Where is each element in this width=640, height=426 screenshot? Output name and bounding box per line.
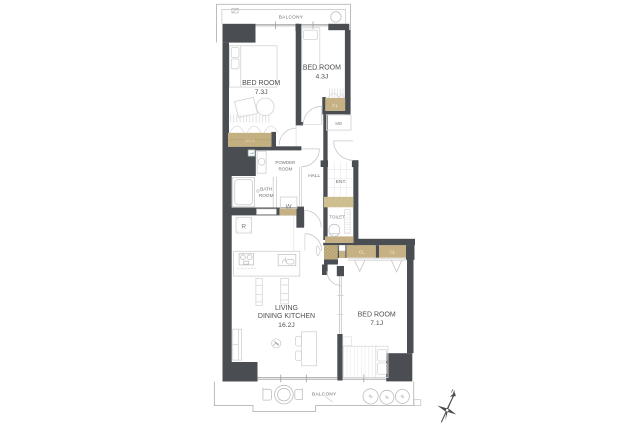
svg-text:BED ROOM: BED ROOM bbox=[358, 311, 396, 318]
svg-text:BED ROOM: BED ROOM bbox=[303, 64, 341, 71]
svg-text:HALL: HALL bbox=[308, 173, 320, 179]
svg-text:CL: CL bbox=[359, 249, 365, 254]
svg-text:POWDER: POWDER bbox=[275, 160, 295, 165]
svg-text:ENT.: ENT. bbox=[336, 179, 346, 185]
svg-text:BED ROOM: BED ROOM bbox=[242, 80, 280, 87]
svg-text:LIVING: LIVING bbox=[275, 305, 298, 312]
svg-text:BALCONY: BALCONY bbox=[279, 14, 304, 19]
svg-text:ROOM: ROOM bbox=[278, 167, 292, 172]
svg-text:BATH: BATH bbox=[260, 187, 272, 192]
svg-text:7.1J: 7.1J bbox=[370, 320, 383, 327]
svg-text:W: W bbox=[286, 203, 292, 210]
svg-text:DINING KITCHEN: DINING KITCHEN bbox=[258, 313, 315, 320]
svg-text:TOILET: TOILET bbox=[329, 215, 345, 220]
svg-text:16.2J: 16.2J bbox=[278, 322, 295, 329]
svg-text:7.3J: 7.3J bbox=[255, 89, 268, 96]
svg-text:R: R bbox=[241, 223, 246, 230]
svg-text:MB: MB bbox=[335, 121, 342, 126]
svg-text:BALCONY: BALCONY bbox=[312, 392, 337, 397]
svg-text:W.I.C: W.I.C bbox=[245, 138, 255, 143]
svg-text:4.3J: 4.3J bbox=[315, 74, 328, 81]
svg-text:CL: CL bbox=[332, 103, 338, 108]
svg-text:CL: CL bbox=[390, 249, 396, 254]
svg-text:ROOM: ROOM bbox=[259, 193, 274, 198]
